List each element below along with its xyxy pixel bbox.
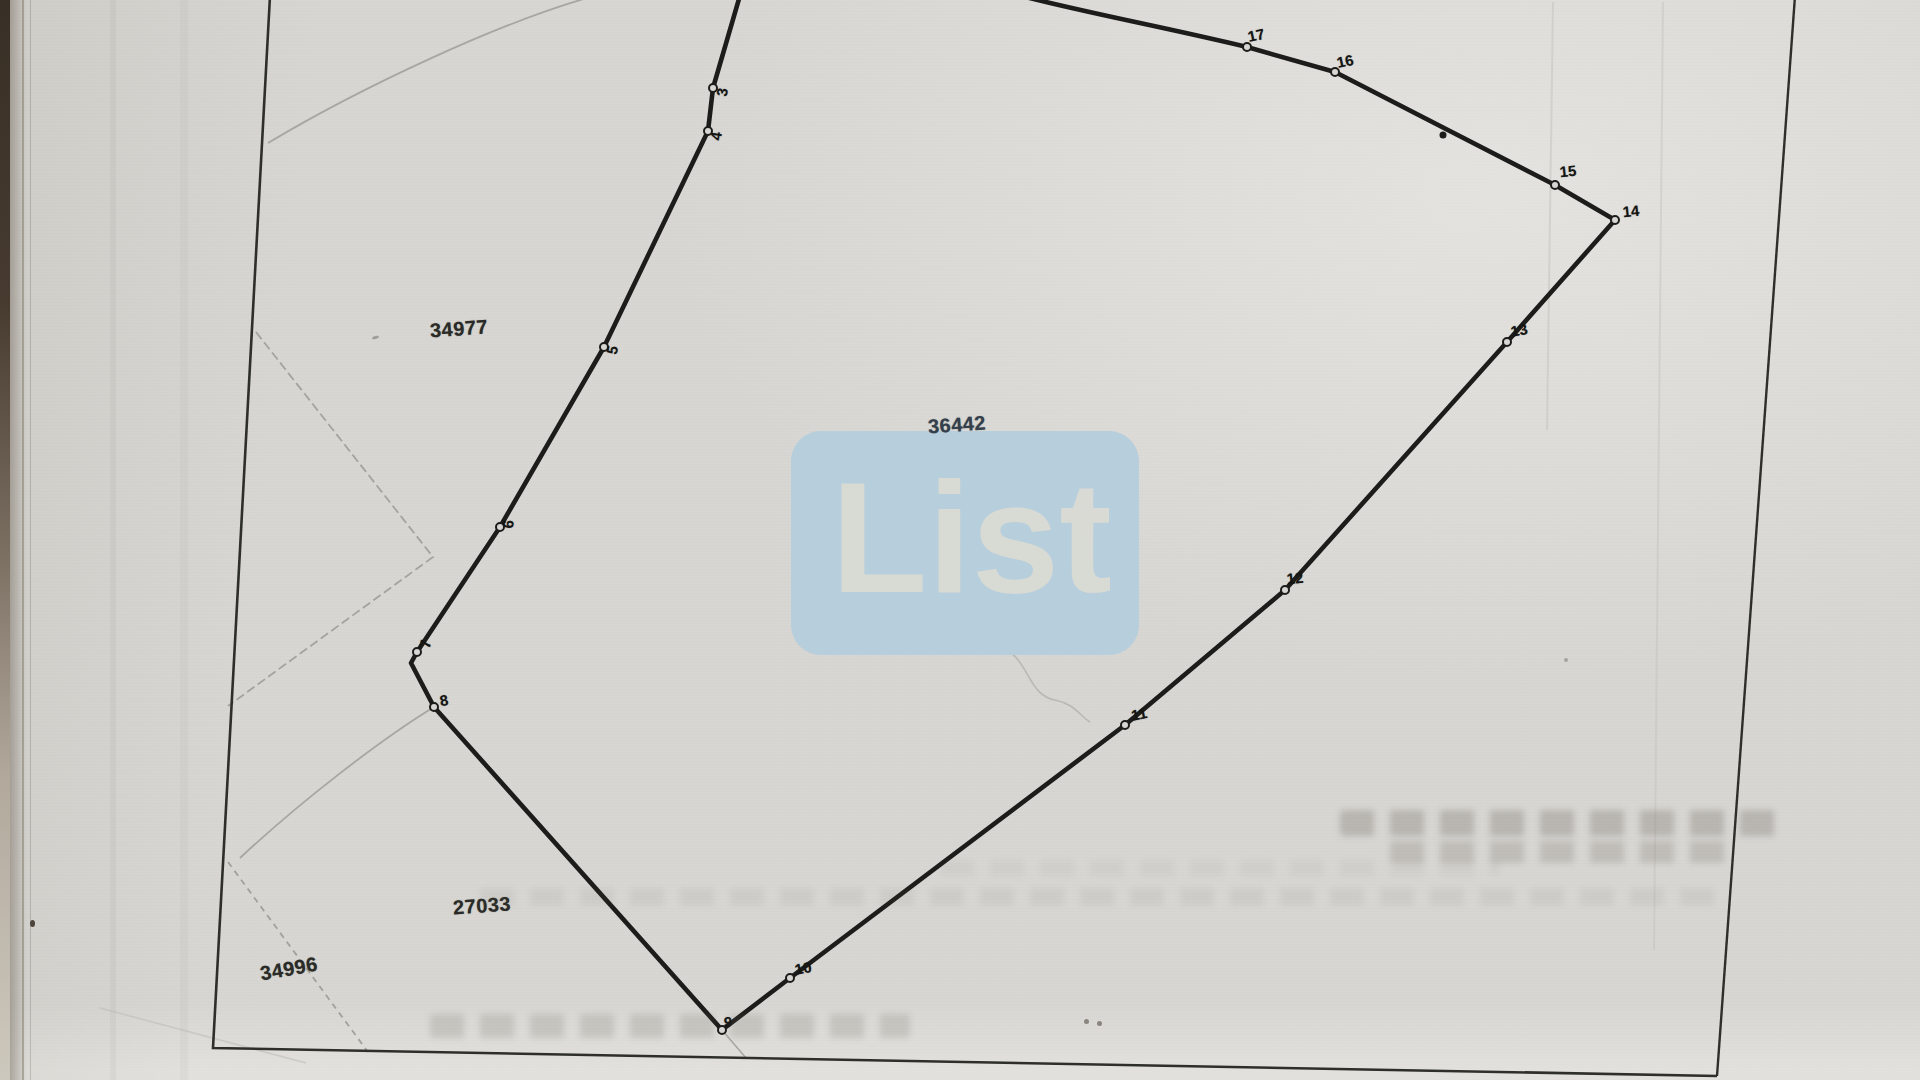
boundary-node [1611,216,1619,224]
boundary-node [430,703,438,711]
intermediate-survey-dot [1440,132,1447,139]
boundary-node [1121,721,1129,729]
paper-crease-line [100,1008,306,1063]
boundary-node [413,648,421,656]
paper-fold-line [1654,2,1663,950]
boundary-node [786,974,794,982]
list-watermark-text: List [831,431,1112,643]
point-label-16: 16 [1335,51,1355,71]
bleed-text-smudge [480,888,1720,906]
faint-parcel-chevron [228,332,433,706]
parcel-label-36442: 36442 [927,412,987,439]
scanned-cadastral-plan-page: List 34977 36442 27033 34996 3 4 5 6 7 8… [0,0,1920,1080]
list-watermark-badge: List [791,431,1139,655]
bleed-text-smudge [940,860,1500,876]
parcel-label-34977: 34977 [429,316,489,343]
boundary-node [1551,181,1559,189]
bleed-text-smudge [430,1014,910,1038]
map-frame-right [1717,0,1795,1076]
faint-parcel-line [240,707,434,858]
bleed-text-smudge [1340,810,1780,836]
paper-crack-line [1004,648,1090,722]
point-label-11: 11 [1129,704,1148,724]
paper-speck [30,920,35,927]
point-label-14: 14 [1622,202,1640,221]
point-label-10: 10 [793,958,813,978]
point-label-15: 15 [1559,162,1577,181]
point-label-17: 17 [1246,25,1266,45]
paper-dot [1084,1019,1089,1024]
point-label-13: 13 [1509,320,1529,340]
point-label-12: 12 [1286,569,1304,588]
boundary-node [1503,338,1511,346]
faint-parcel-line [268,0,594,143]
paper-speck [1564,658,1568,662]
paper-dot [1097,1021,1102,1026]
paper-fold-line [1547,2,1553,430]
